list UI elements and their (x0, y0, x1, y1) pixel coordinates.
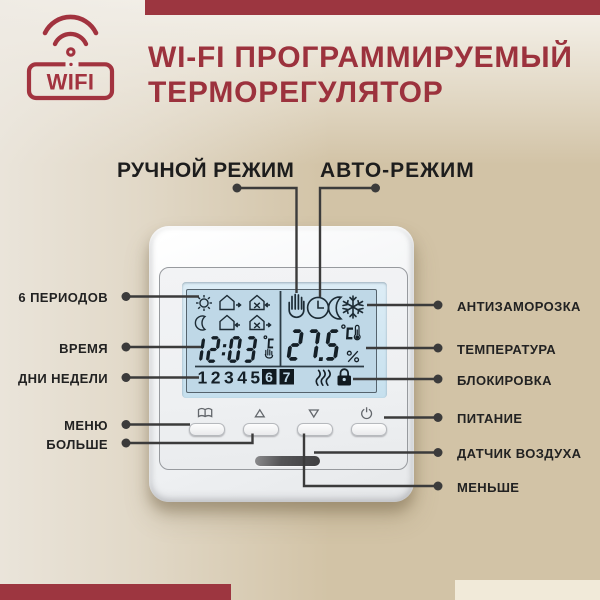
svg-text:6: 6 (265, 369, 273, 385)
svg-text:7: 7 (283, 369, 291, 385)
svg-text:12345: 12345 (198, 368, 264, 388)
